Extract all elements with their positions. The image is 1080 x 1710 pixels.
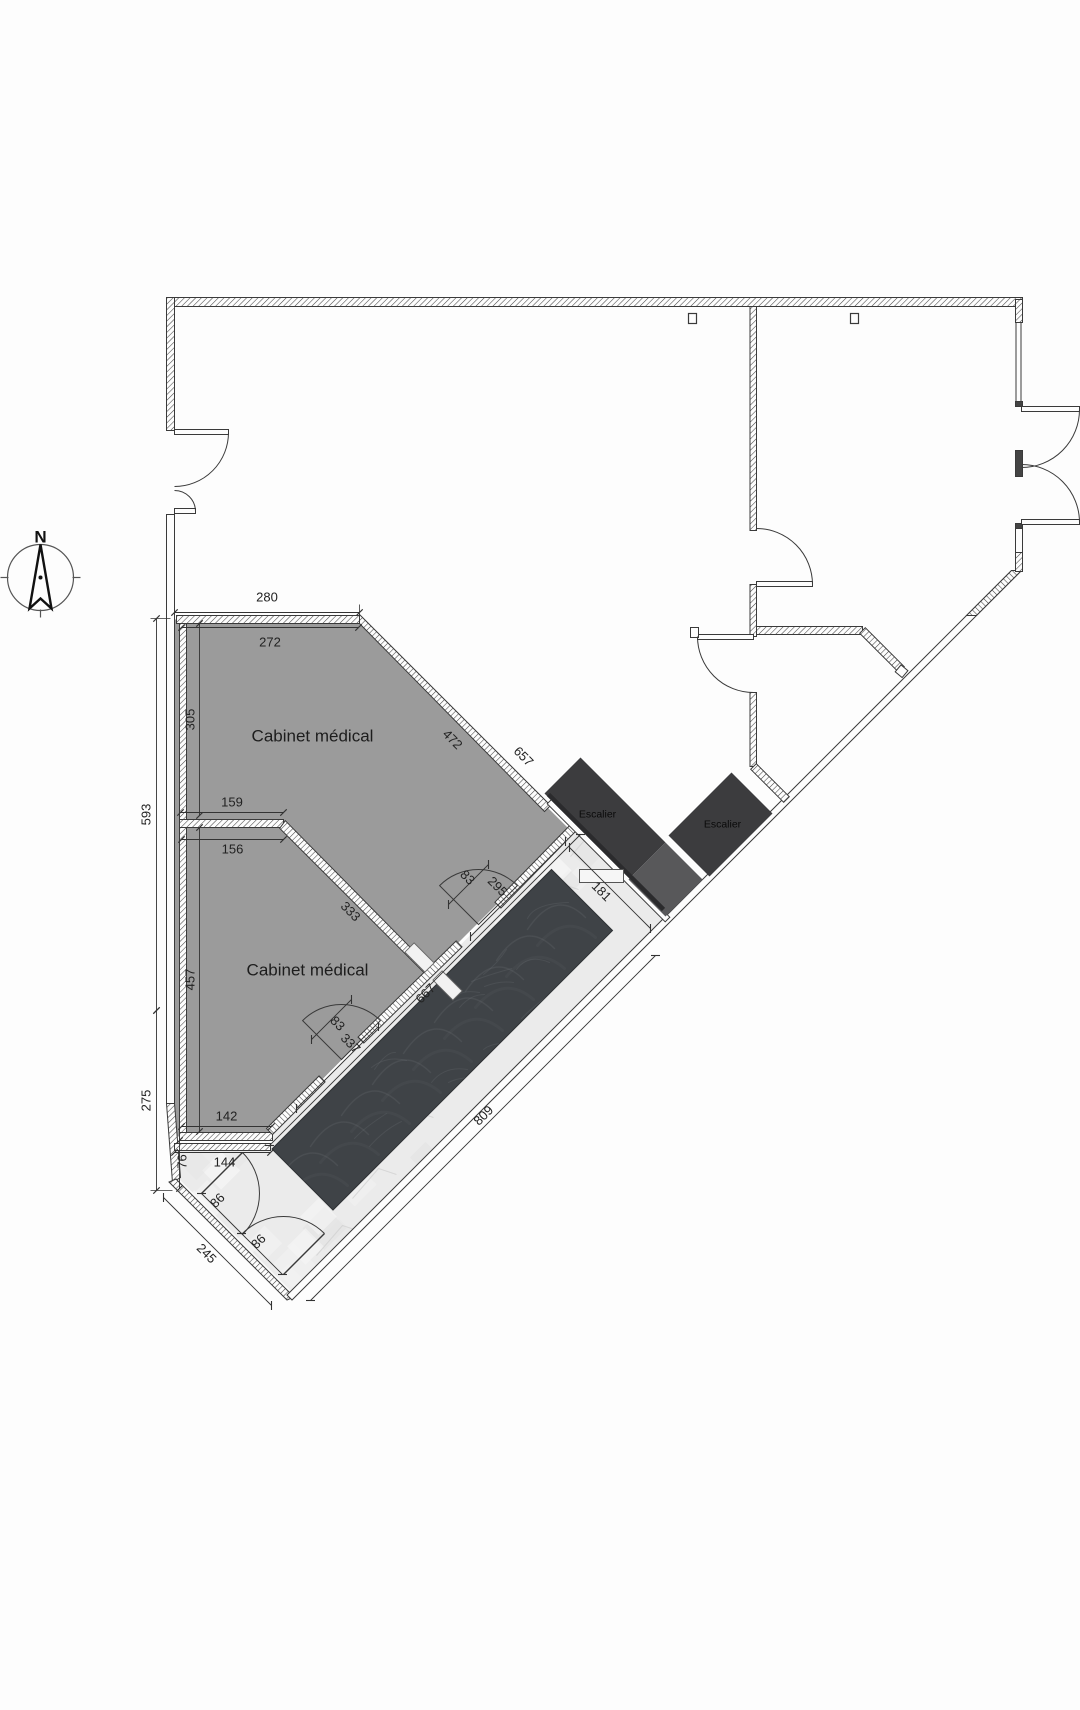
svg-text:593: 593 [139, 804, 154, 826]
svg-text:275: 275 [139, 1090, 154, 1112]
svg-text:76: 76 [175, 1154, 190, 1168]
svg-text:Cabinet médical: Cabinet médical [247, 961, 369, 980]
svg-text:156: 156 [222, 842, 244, 857]
svg-text:144: 144 [214, 1155, 236, 1170]
svg-text:Escalier: Escalier [704, 819, 742, 831]
svg-text:280: 280 [256, 590, 278, 605]
svg-text:272: 272 [259, 635, 281, 650]
svg-text:142: 142 [216, 1109, 238, 1124]
svg-text:N: N [34, 528, 46, 547]
svg-text:Escalier: Escalier [579, 809, 617, 821]
svg-text:457: 457 [183, 969, 198, 991]
svg-text:305: 305 [183, 709, 198, 731]
svg-text:Cabinet médical: Cabinet médical [252, 727, 374, 746]
svg-text:159: 159 [221, 795, 243, 810]
